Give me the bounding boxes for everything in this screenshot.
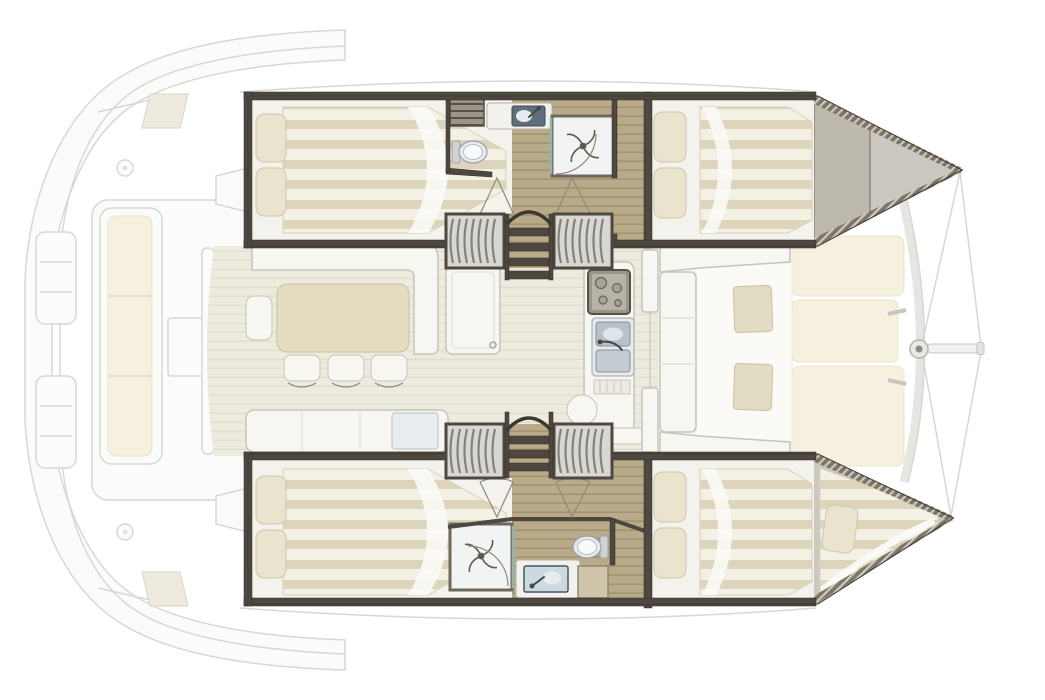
dining-table [277,284,409,352]
forepeak-pillow [821,504,859,554]
floorplan-canvas [0,0,1045,700]
galley-sink [592,318,634,376]
starboard-forward-pillow-2 [654,528,686,578]
port-hull-bottom-wall-aft [244,240,450,248]
aft-cockpit-bench-cushion [108,216,152,456]
salon-cabinet [446,266,500,354]
port-stairs-right [554,214,612,268]
starboard-hull-bottom-wall [244,598,816,606]
starboard-aft-pillow-1 [256,476,286,524]
forestay-bottom [951,352,981,516]
port-aft-pillow-1 [256,114,286,162]
chaise-longue [246,410,448,452]
starboard-forward-cabin [644,452,814,608]
side-deck-step-bottom [142,572,188,606]
sheer-line-top [240,81,816,92]
starboard-aft-pillow-2 [256,530,286,578]
port-hull-bottom-wall-fwd [610,240,816,248]
starboard-hull-top-wall-fwd [610,452,816,460]
chaise-cushion [392,413,438,449]
forward-cockpit-table-bottom [733,363,773,410]
bowsprit [927,344,981,353]
galley-drainboard [594,380,630,394]
starboard-vanity [516,560,580,598]
salon-side-seat [246,296,272,340]
port-forward-pillow-1 [654,112,686,162]
starboard-stairs-left [446,424,504,478]
port-aft-pillow-2 [256,168,286,216]
sheer-line-bottom [240,608,816,619]
davit-bottom [216,488,248,532]
davit-top [216,168,248,212]
starboard-toilet [573,536,608,558]
starboard-hull-top-wall-aft [244,452,450,460]
port-stairs-left [446,214,504,268]
catamaran-floorplan [0,0,1045,700]
galley-stool [567,395,597,425]
forward-cockpit-table-top [733,285,773,332]
port-shower [551,116,614,176]
side-deck-step-top [142,94,188,128]
port-forward-cabin [644,92,814,248]
port-forward-pillow-2 [654,168,686,218]
starboard-stairs-right [554,424,612,478]
foredeck-sunpad-fwd [792,366,904,466]
starboard-bathroom-closet [578,566,608,598]
port-vanity [487,103,552,129]
forestay-top [960,172,981,346]
foredeck-sunpad-mid [792,300,898,362]
port-toilet [452,141,487,163]
starboard-shower [450,524,513,590]
starboard-forward-pillow-1 [654,472,686,522]
galley-stove [588,270,630,314]
forward-cockpit-bench-left [660,272,696,432]
